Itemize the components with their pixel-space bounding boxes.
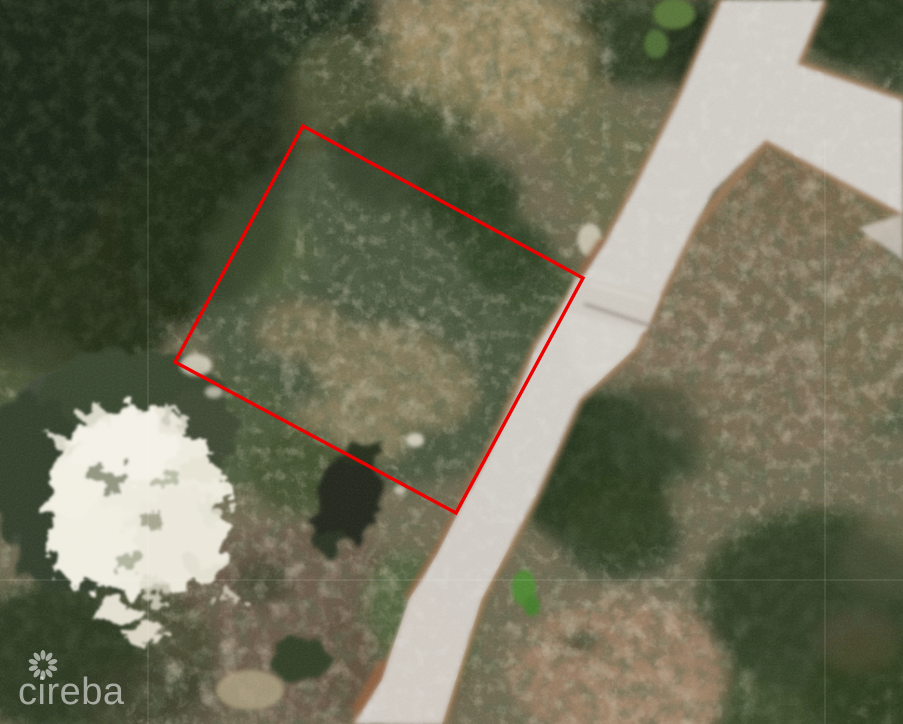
svg-text:cireba: cireba bbox=[18, 671, 125, 713]
